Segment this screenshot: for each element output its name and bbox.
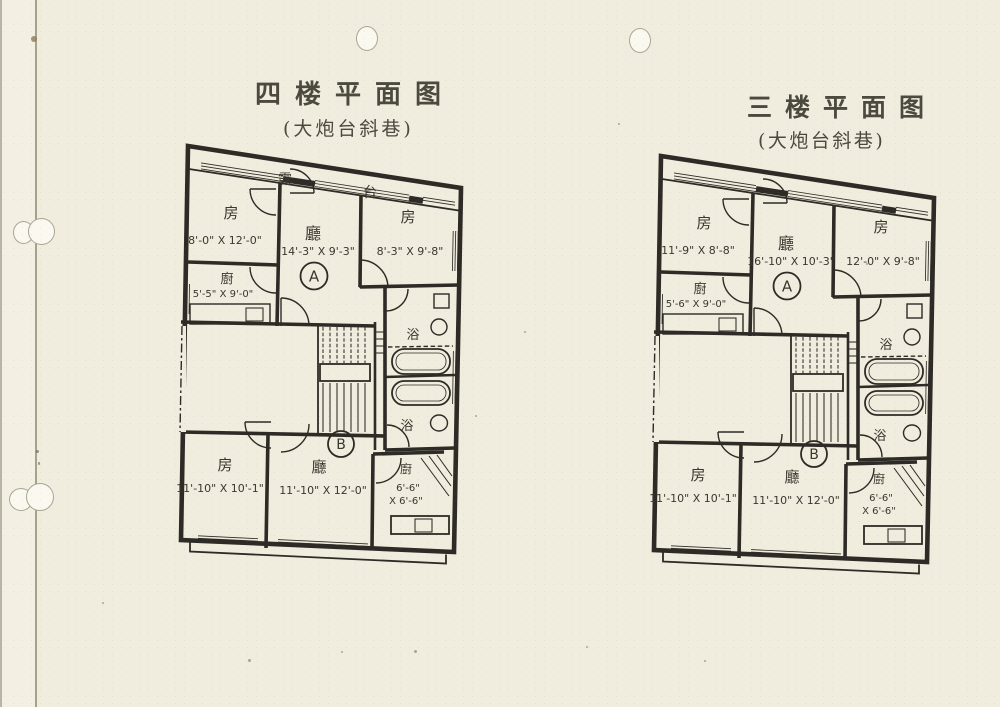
floor-plan-4f-drawing: 露 台 [163, 136, 473, 568]
unit-a-badge: A [774, 273, 801, 300]
room-dims: 11'-10" X 12'-0" [279, 484, 367, 497]
lightwell-boundary [649, 336, 659, 442]
room-label: 廚 [400, 461, 412, 476]
door-arc [281, 298, 309, 326]
svg-text:A: A [782, 278, 793, 296]
speck [341, 651, 343, 653]
svg-text:B: B [336, 437, 346, 453]
room-dims: 5'-5" X 9'-0" [193, 289, 254, 300]
lightwell-boundary [176, 326, 186, 432]
unit-a-badge: A [301, 263, 328, 290]
room-label: 廚 [873, 471, 885, 486]
door-arc [849, 468, 874, 493]
door-arc [833, 270, 861, 298]
svg-text:B: B [809, 447, 819, 463]
speck [31, 36, 37, 42]
door-arc [281, 424, 309, 452]
bathrooms: 浴 浴 [388, 294, 453, 434]
toilet-tank-icon [434, 294, 449, 308]
room-dims: 11'-9" X 8'-8" [661, 244, 735, 257]
floor-plan-title-3f: 三楼平面图 [747, 88, 937, 124]
floor-plan-title-4f: 四楼平面图 [255, 74, 455, 111]
room-dims: 6'-6" [869, 493, 893, 504]
bath-label: 浴 [406, 328, 419, 343]
toilet-icon [904, 425, 921, 441]
binder-hole-lower-b [26, 483, 54, 511]
room-label: 房 [873, 218, 888, 236]
speck [704, 660, 706, 662]
room-label: 房 [690, 466, 705, 484]
room-label: 廚 [220, 271, 233, 287]
speck [248, 659, 251, 662]
room-dims: 8'-0" X 12'-0" [188, 234, 262, 247]
room-dims: 12'-0" X 9'-8" [846, 255, 920, 268]
speck [524, 331, 526, 333]
room-dims: 11'-10" X 10'-1" [176, 482, 264, 495]
bath-label: 浴 [879, 338, 892, 353]
room-label: 廚 [693, 281, 706, 297]
room-label: 房 [217, 456, 232, 474]
bathrooms: 浴 浴 [861, 304, 926, 444]
room-label: 廳 [311, 458, 326, 476]
floor-plan-3f-drawing: 浴 浴 [636, 146, 946, 578]
binder-hole-upper-b [28, 218, 55, 245]
wall-pier [409, 199, 423, 201]
room-dims: X 6'-6" [862, 506, 896, 517]
toilet-icon [904, 329, 920, 345]
sink-icon [719, 318, 736, 331]
scanned-page: 四楼平面图 (大炮台斜巷) 三楼平面图 (大炮台斜巷) 露 台 [0, 0, 1000, 707]
room-labels: 房 11'-9" X 8'-8" 廳 16'-10" X 10'-3" 房 12… [649, 214, 920, 517]
toilet-icon [431, 415, 448, 431]
floor-plan: 浴 浴 [636, 146, 946, 578]
speck [102, 602, 104, 604]
room-dims: 11'-10" X 12'-0" [752, 494, 840, 507]
stair-landing [320, 364, 370, 381]
sink-icon [888, 529, 905, 542]
speck [36, 450, 39, 453]
room-labels: 房 8'-0" X 12'-0" 廳 14'-3" X 9'-3" 房 8'-3… [176, 204, 443, 507]
door-arc [754, 434, 782, 462]
speck [618, 123, 620, 125]
room-dims: 16'-10" X 10'-3" [747, 255, 835, 268]
balcony-label: 台 [363, 185, 377, 201]
punch-hole-top-right [629, 28, 651, 53]
speck [38, 462, 40, 465]
toilet-icon [431, 319, 447, 335]
room-dims: X 6'-6" [389, 496, 423, 507]
room-dims: 8'-3" X 9'-8" [377, 245, 444, 258]
room-label: 廳 [778, 234, 794, 253]
door-arc [859, 299, 881, 321]
door-arc [754, 308, 782, 336]
room-label: 房 [696, 214, 711, 232]
speck [414, 650, 417, 653]
toilet-tank-icon [907, 304, 922, 318]
door-arc [723, 277, 749, 303]
room-dims: 14'-3" X 9'-3" [281, 245, 355, 258]
door-arc [386, 289, 408, 311]
door-arc [250, 267, 276, 293]
room-label: 廳 [305, 224, 321, 243]
room-label: 房 [223, 204, 238, 222]
door-arc [250, 189, 276, 215]
punch-hole-top-left [356, 26, 378, 51]
room-label: 房 [400, 208, 415, 226]
floor-plan: 露 台 [163, 136, 473, 568]
door-arc [723, 199, 749, 225]
stairs [320, 327, 370, 432]
speck [475, 415, 477, 417]
room-label: 廳 [784, 468, 799, 486]
paper-fold-strip [0, 0, 35, 707]
room-dims: 5'-6" X 9'-0" [666, 299, 727, 310]
room-dims: 11'-10" X 10'-1" [649, 492, 737, 505]
door-arc [360, 260, 388, 288]
sink-icon [246, 308, 263, 321]
fold-line [35, 0, 37, 707]
door-arc [376, 458, 401, 483]
svg-text:A: A [309, 268, 320, 286]
speck [586, 646, 588, 648]
stairs [793, 337, 843, 442]
wall-pier [882, 209, 896, 211]
room-dims: 6'-6" [396, 483, 420, 494]
page-left-edge [0, 0, 2, 707]
stair-landing [793, 374, 843, 391]
sink-icon [415, 519, 432, 532]
